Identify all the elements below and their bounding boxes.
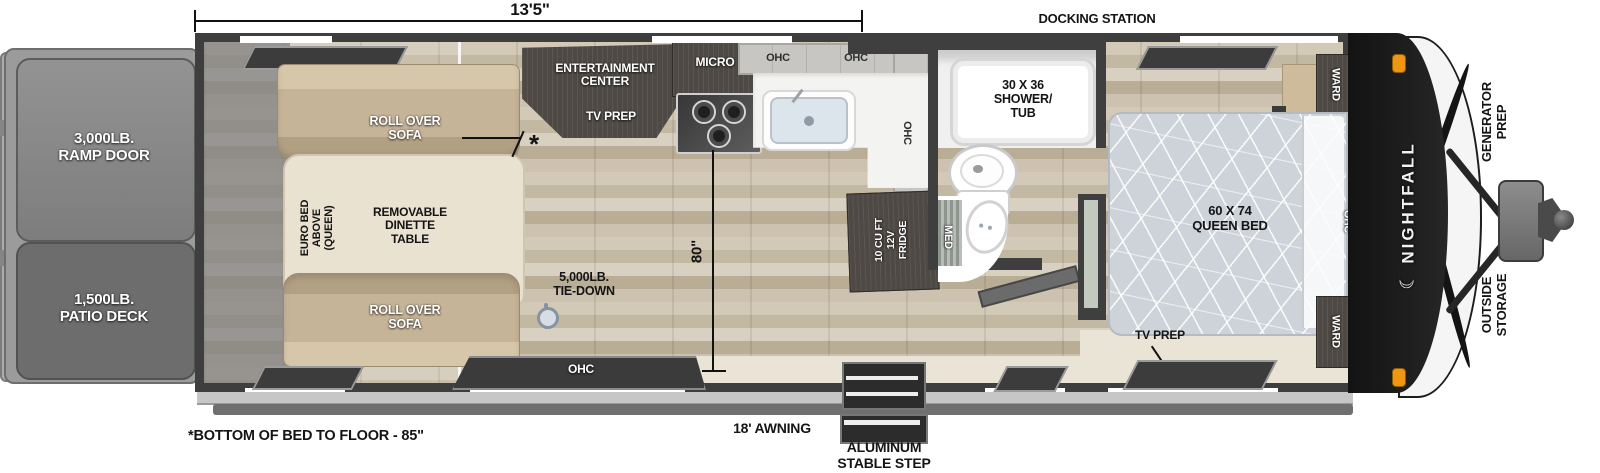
propane-box [1498,180,1544,262]
bed-floor-note: *BOTTOM OF BED TO FLOOR - 85" [188,426,478,446]
garage-bottom-window [252,366,364,390]
burner-icon [722,100,746,124]
floorplan-canvas: 13'5" DOCKING STATION 3,000LB. RAMP DOOR… [0,0,1600,473]
dinette-label: REMOVABLE DINETTE TABLE [350,196,470,256]
width-dim-label: 80" [690,235,707,269]
stove [676,93,762,154]
moon-icon: ☾ [1397,270,1418,290]
garage-length-label: 13'5" [465,0,595,19]
asterisk-dim-line [462,137,520,139]
ward-top-label: WARD [1329,63,1342,107]
ohc-kitchen-1-label: OHC [758,50,798,66]
sofa-bottom-label: ROLL OVER SOFA [320,296,490,338]
euro-bed-label: EURO BED ABOVE (QUEEN) [296,186,338,270]
garage-dimension-line [195,20,863,22]
wall-strip [240,36,332,43]
tie-down-icon [536,303,556,329]
bath-left-wall [928,42,938,268]
bedroom-bottom-window-small [993,366,1068,392]
wall-strip [652,36,792,43]
ohc-counter-label: OHC [900,118,914,148]
generator-prep-label: GENERATOR PREP [1480,79,1510,165]
med-label: MED [941,219,955,255]
width-dim-tick [702,370,726,372]
bedroom-partition-face [1084,200,1098,308]
brand-name: NIGHTFALL [1398,141,1417,263]
awning-bar [213,404,1353,415]
bedroom-top-window [1136,46,1278,70]
wall-strip [1180,36,1338,43]
entry-steps-inner [842,362,926,410]
ward-bottom-label: WARD [1329,310,1342,354]
ramp-door-label: 3,000LB. RAMP DOOR [26,120,182,176]
kitchen-sink [762,90,856,151]
width-dimension-line [712,150,714,372]
awning-label: 18' AWNING [710,420,834,438]
docking-station-label: DOCKING STATION [1012,10,1182,28]
tv-prep-bedroom-label: TV PREP [1118,328,1202,344]
bedroom-bottom-window-large [1122,360,1277,390]
patio-deck-label: 1,500LB. PATIO DECK [26,282,182,336]
shower-label: 30 X 36 SHOWER/ TUB [968,64,1078,134]
bath-right-wall [1096,42,1106,148]
step-label: ALUMINUM STABLE STEP [820,440,948,472]
fridge-label: 10 CU FT 12V FRIDGE [872,208,912,272]
sofa-top-label: ROLL OVER SOFA [320,106,490,150]
outside-storage-label: OUTSIDE STORAGE [1480,269,1510,341]
tv-prep-living-label: TV PREP [566,108,656,126]
burner-icon [707,124,731,148]
burner-icon [692,100,716,124]
dim-tick-left [194,10,196,32]
queen-bed-label: 60 X 74 QUEEN BED [1170,196,1290,242]
hitch-ball [1554,210,1574,230]
clearance-light-top [1392,54,1406,73]
dim-tick-right [861,10,863,32]
ohc-galley-label: OHC [556,361,606,379]
brand-logo: ☾NIGHTFALL [1396,116,1421,316]
clearance-light-bottom [1392,368,1406,387]
asterisk-mark: * [522,132,546,158]
tie-down-label: 5,000LB. TIE-DOWN [538,268,630,300]
entertainment-label: ENTERTAINMENT CENTER [534,58,676,92]
